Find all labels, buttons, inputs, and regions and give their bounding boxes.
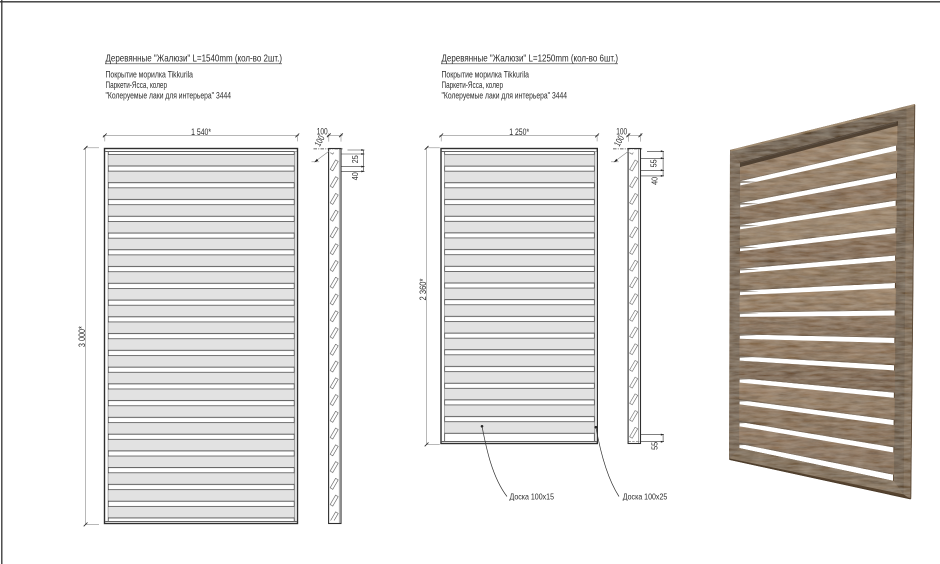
svg-text:Покрытие морилка Tikkurila: Покрытие морилка Tikkurila [442,69,530,79]
svg-text:2 360*: 2 360* [418,278,428,300]
svg-text:40: 40 [350,172,360,180]
svg-text:Паркети-Ясса, колер: Паркети-Ясса, колер [442,80,504,90]
svg-text:"Колеруемые лаки для интерьера: "Колеруемые лаки для интерьера" 3444 [106,91,232,101]
svg-text:Доска 100х15: Доска 100х15 [510,493,555,502]
svg-text:40: 40 [649,177,659,185]
svg-text:1 250*: 1 250* [509,127,529,137]
svg-text:Деревянные "Жалюзи" L=1540mm (: Деревянные "Жалюзи" L=1540mm (кол-во 2шт… [106,54,283,65]
svg-text:Доска 100х25: Доска 100х25 [623,493,668,502]
svg-text:3 000*: 3 000* [77,326,87,347]
svg-text:25: 25 [350,155,360,163]
svg-text:Паркети-Ясса, колер: Паркети-Ясса, колер [106,80,168,90]
svg-text:1 540*: 1 540* [191,127,211,137]
svg-text:55: 55 [650,442,660,450]
svg-text:Покрытие морилка Tikkurila: Покрытие морилка Tikkurila [106,69,194,79]
svg-text:55: 55 [649,159,659,167]
svg-text:"Колеруемые лаки для интерьера: "Колеруемые лаки для интерьера" 3444 [442,91,568,101]
svg-text:Деревянные "Жалюзи" L=1250mm (: Деревянные "Жалюзи" L=1250mm (кол-во 6шт… [442,54,619,65]
